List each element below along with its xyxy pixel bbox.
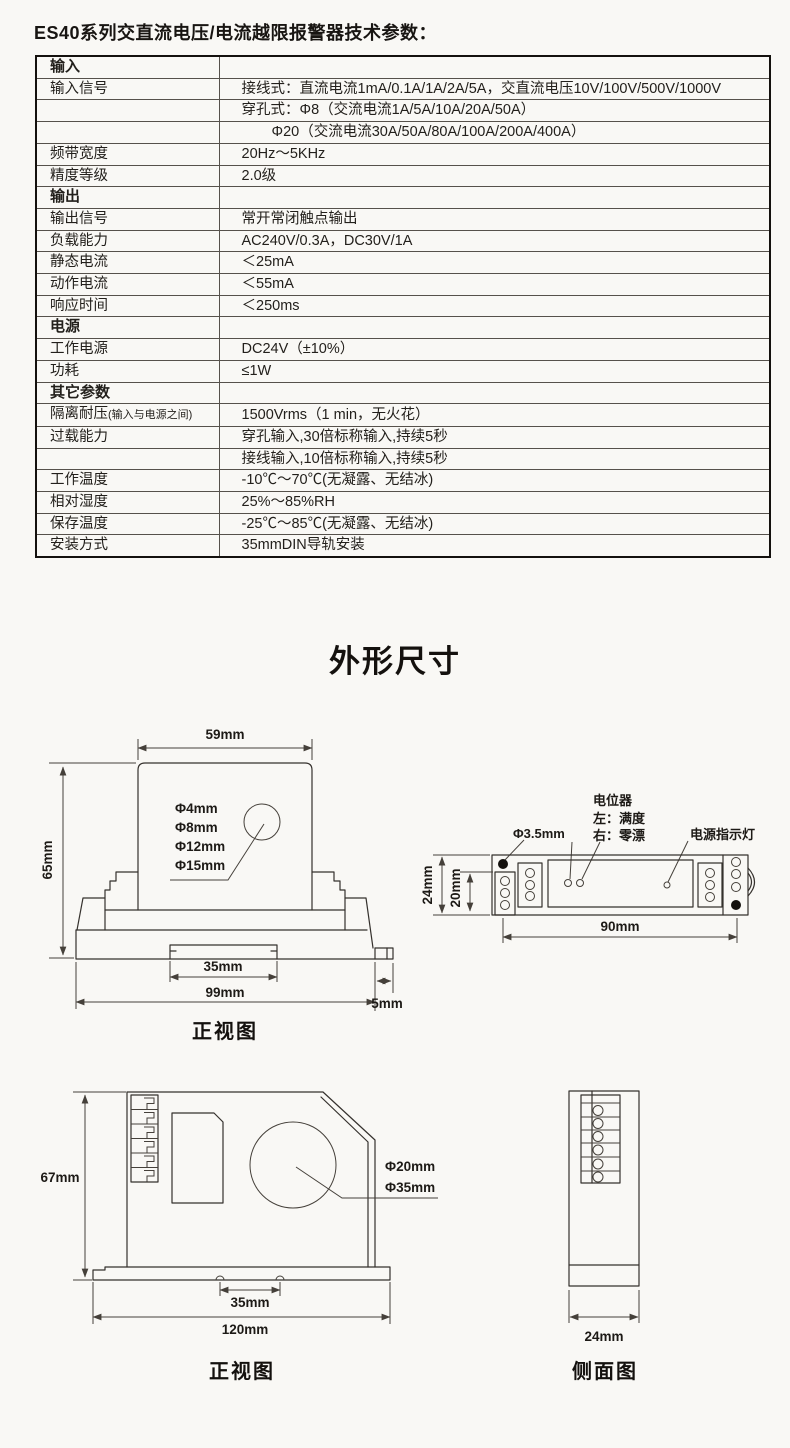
hole-size-label: Φ4mm bbox=[175, 801, 218, 816]
outline-section-title: 外形尺寸 bbox=[0, 636, 790, 681]
label-area bbox=[172, 1113, 223, 1203]
spec-value: ＜55mA bbox=[219, 274, 770, 296]
top-view-drawing: 电位器 左：满度 右：零漂 Φ3.5mm 电源指示灯 bbox=[420, 780, 790, 950]
dim-inner-height: 20mm bbox=[448, 868, 463, 907]
spec-row: 精度等级2.0级 bbox=[36, 165, 770, 187]
spec-label: 输出信号 bbox=[36, 208, 219, 230]
spec-label bbox=[36, 448, 219, 470]
dim-notch: 35mm bbox=[203, 959, 242, 974]
spec-value: DC24V（±10%） bbox=[219, 339, 770, 361]
spec-section-row: 其它参数 bbox=[36, 382, 770, 404]
hole-size-label: Φ12mm bbox=[175, 839, 225, 854]
spec-label bbox=[36, 100, 219, 122]
dim-base-width: 99mm bbox=[205, 985, 244, 1000]
spec-sheet-page: ES40系列交直流电压/电流越限报警器技术参数： 输入输入信号接线式：直流电流1… bbox=[0, 0, 790, 1448]
power-led-label: 电源指示灯 bbox=[690, 827, 755, 842]
spec-label: 输入 bbox=[36, 56, 219, 78]
dimension-lines: 24mm 20mm 90mm bbox=[420, 855, 737, 943]
dimension-lines: 67mm 35mm 120mm bbox=[40, 1092, 390, 1337]
device-outline bbox=[76, 763, 393, 959]
through-hole-callout: Φ20mm Φ35mm bbox=[296, 1159, 438, 1198]
dim-height: 67mm bbox=[40, 1170, 79, 1185]
spec-label: 响应时间 bbox=[36, 295, 219, 317]
spec-label: 功耗 bbox=[36, 360, 219, 382]
spec-label: 隔离耐压(输入与电源之间) bbox=[36, 404, 219, 427]
spec-row: 安装方式35mmDIN导轨安装 bbox=[36, 535, 770, 557]
terminal-block bbox=[581, 1095, 620, 1183]
spec-row: 过载能力穿孔输入,30倍标称输入,持续5秒 bbox=[36, 426, 770, 448]
spec-row: Φ20（交流电流30A/50A/80A/100A/200A/400A） bbox=[36, 122, 770, 144]
spec-label: 静态电流 bbox=[36, 252, 219, 274]
spec-label: 相对湿度 bbox=[36, 492, 219, 514]
spec-value: -25℃～85℃(无凝露、无结冰) bbox=[219, 513, 770, 535]
spec-value: 1500Vrms（1 min，无火花） bbox=[219, 404, 770, 427]
spec-section-row: 电源 bbox=[36, 317, 770, 339]
through-hole bbox=[250, 1122, 336, 1208]
label-area bbox=[548, 860, 693, 907]
through-hole bbox=[244, 804, 280, 840]
spec-value: 接线输入,10倍标称输入,持续5秒 bbox=[219, 448, 770, 470]
spec-value: ＜25mA bbox=[219, 252, 770, 274]
din-rail-notch bbox=[170, 945, 277, 959]
spec-row: 相对湿度25%～85%RH bbox=[36, 492, 770, 514]
drawing-caption: 正视图 bbox=[192, 1020, 258, 1043]
device-outline bbox=[569, 1091, 639, 1286]
front-view-1-drawing: Φ4mm Φ8mm Φ12mm Φ15mm 59mm 65mm 35mm 99m… bbox=[35, 720, 410, 1050]
device-outline bbox=[492, 855, 755, 915]
spec-value: 穿孔式：Φ8（交流电流1A/5A/10A/20A/50A） bbox=[219, 100, 770, 122]
side-view-drawing: 24mm 侧面图 bbox=[530, 1075, 730, 1395]
drawing-caption: 侧面图 bbox=[572, 1359, 638, 1383]
mount-hole-label: Φ3.5mm bbox=[513, 826, 565, 841]
front-view-2-drawing: Φ20mm Φ35mm 67mm 35mm 120mm 正视图 bbox=[40, 1075, 460, 1395]
potentiometer bbox=[565, 880, 572, 887]
drawing-caption: 正视图 bbox=[209, 1360, 275, 1383]
spec-value: Φ20（交流电流30A/50A/80A/100A/200A/400A） bbox=[219, 122, 770, 144]
spec-value: 常开常闭触点输出 bbox=[219, 208, 770, 230]
spec-label: 安装方式 bbox=[36, 535, 219, 557]
hole-size-label: Φ20mm bbox=[385, 1159, 435, 1174]
page-title: ES40系列交直流电压/电流越限报警器技术参数： bbox=[34, 19, 437, 45]
spec-section-row: 输入 bbox=[36, 56, 770, 78]
dim-width: 120mm bbox=[222, 1322, 269, 1337]
spec-row: 负载能力AC240V/0.3A，DC30V/1A bbox=[36, 230, 770, 252]
spec-row: 动作电流＜55mA bbox=[36, 274, 770, 296]
spec-value: -10℃～70℃(无凝露、无结冰) bbox=[219, 470, 770, 492]
hole-size-label: Φ35mm bbox=[385, 1180, 435, 1195]
spec-row: 接线输入,10倍标称输入,持续5秒 bbox=[36, 448, 770, 470]
dim-top-width: 59mm bbox=[205, 727, 244, 742]
spec-row: 保存温度-25℃～85℃(无凝露、无结冰) bbox=[36, 513, 770, 535]
spec-value: ≤1W bbox=[219, 360, 770, 382]
pot-right-label: 右：零漂 bbox=[592, 828, 645, 843]
spec-row: 工作电源DC24V（±10%） bbox=[36, 339, 770, 361]
spec-label: 动作电流 bbox=[36, 274, 219, 296]
spec-label: 负载能力 bbox=[36, 230, 219, 252]
spec-label: 其它参数 bbox=[36, 382, 219, 404]
spec-row: 输出信号常开常闭触点输出 bbox=[36, 208, 770, 230]
spec-row: 输入信号接线式：直流电流1mA/0.1A/1A/2A/5A，交直流电压10V/1… bbox=[36, 78, 770, 100]
dim-width: 24mm bbox=[584, 1329, 623, 1344]
dim-height: 65mm bbox=[40, 840, 55, 879]
spec-row: 频带宽度20Hz～5KHz bbox=[36, 143, 770, 165]
spec-value bbox=[219, 187, 770, 209]
spec-value bbox=[219, 56, 770, 78]
spec-label: 工作温度 bbox=[36, 470, 219, 492]
spec-value bbox=[219, 317, 770, 339]
spec-label: 精度等级 bbox=[36, 165, 219, 187]
spec-row: 静态电流＜25mA bbox=[36, 252, 770, 274]
spec-table: 输入输入信号接线式：直流电流1mA/0.1A/1A/2A/5A，交直流电压10V… bbox=[35, 55, 771, 558]
spec-value: AC240V/0.3A，DC30V/1A bbox=[219, 230, 770, 252]
spec-label bbox=[36, 122, 219, 144]
through-hole-callout: Φ4mm Φ8mm Φ12mm Φ15mm bbox=[170, 801, 280, 880]
dim-notch: 35mm bbox=[230, 1295, 269, 1310]
dimension-lines: 24mm bbox=[569, 1290, 639, 1344]
spec-row: 穿孔式：Φ8（交流电流1A/5A/10A/20A/50A） bbox=[36, 100, 770, 122]
mounting-hole bbox=[498, 859, 508, 869]
spec-value: 25%～85%RH bbox=[219, 492, 770, 514]
spec-value: ＜250ms bbox=[219, 295, 770, 317]
potentiometer bbox=[577, 880, 584, 887]
spec-value: 2.0级 bbox=[219, 165, 770, 187]
pot-left-label: 左：满度 bbox=[593, 811, 646, 826]
device-outline bbox=[93, 1092, 390, 1280]
spec-section-row: 输出 bbox=[36, 187, 770, 209]
spec-label: 输出 bbox=[36, 187, 219, 209]
dim-hole-span: 90mm bbox=[600, 919, 639, 934]
spec-row: 响应时间＜250ms bbox=[36, 295, 770, 317]
potentiometer-label: 电位器 bbox=[593, 793, 633, 808]
spec-value: 20Hz～5KHz bbox=[219, 143, 770, 165]
spec-label: 频带宽度 bbox=[36, 143, 219, 165]
spec-table-body: 输入输入信号接线式：直流电流1mA/0.1A/1A/2A/5A，交直流电压10V… bbox=[36, 56, 770, 557]
spec-label: 电源 bbox=[36, 317, 219, 339]
spec-value: 穿孔输入,30倍标称输入,持续5秒 bbox=[219, 426, 770, 448]
spec-label: 工作电源 bbox=[36, 339, 219, 361]
dim-height: 24mm bbox=[420, 865, 435, 904]
spec-row: 功耗≤1W bbox=[36, 360, 770, 382]
spec-value: 接线式：直流电流1mA/0.1A/1A/2A/5A，交直流电压10V/100V/… bbox=[219, 78, 770, 100]
spec-value bbox=[219, 382, 770, 404]
spec-label-note: (输入与电源之间) bbox=[108, 409, 192, 421]
spec-row: 工作温度-10℃～70℃(无凝露、无结冰) bbox=[36, 470, 770, 492]
hole-size-label: Φ8mm bbox=[175, 820, 218, 835]
spec-label: 输入信号 bbox=[36, 78, 219, 100]
hole-size-label: Φ15mm bbox=[175, 858, 225, 873]
spec-label: 保存温度 bbox=[36, 513, 219, 535]
spec-row: 隔离耐压(输入与电源之间)1500Vrms（1 min，无火花） bbox=[36, 404, 770, 427]
spec-value: 35mmDIN导轨安装 bbox=[219, 535, 770, 557]
power-led bbox=[664, 882, 670, 888]
dim-tab: 5mm bbox=[371, 996, 403, 1011]
spec-label: 过载能力 bbox=[36, 426, 219, 448]
mounting-hole bbox=[731, 900, 741, 910]
